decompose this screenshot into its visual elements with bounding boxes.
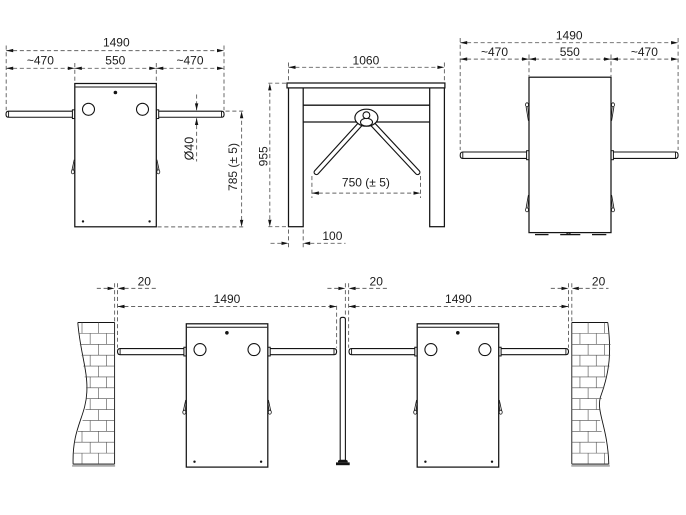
svg-text:750 (± 5): 750 (± 5) (342, 176, 390, 190)
svg-text:100: 100 (322, 229, 342, 243)
svg-text:550: 550 (560, 45, 580, 59)
svg-text:1060: 1060 (353, 53, 380, 67)
svg-text:~470: ~470 (481, 45, 508, 59)
svg-text:550: 550 (105, 54, 125, 68)
svg-text:1490: 1490 (214, 292, 241, 306)
svg-text:1490: 1490 (103, 35, 130, 49)
svg-text:20: 20 (592, 275, 606, 289)
svg-text:1490: 1490 (556, 29, 583, 43)
svg-text:~470: ~470 (27, 54, 54, 68)
svg-text:785 (± 5): 785 (± 5) (226, 143, 240, 191)
svg-text:~470: ~470 (176, 54, 203, 68)
svg-text:1490: 1490 (445, 292, 472, 306)
svg-text:~470: ~470 (631, 45, 658, 59)
svg-text:955: 955 (256, 146, 270, 166)
svg-text:20: 20 (138, 275, 152, 289)
svg-text:Ø40: Ø40 (183, 137, 197, 161)
svg-text:20: 20 (370, 275, 384, 289)
